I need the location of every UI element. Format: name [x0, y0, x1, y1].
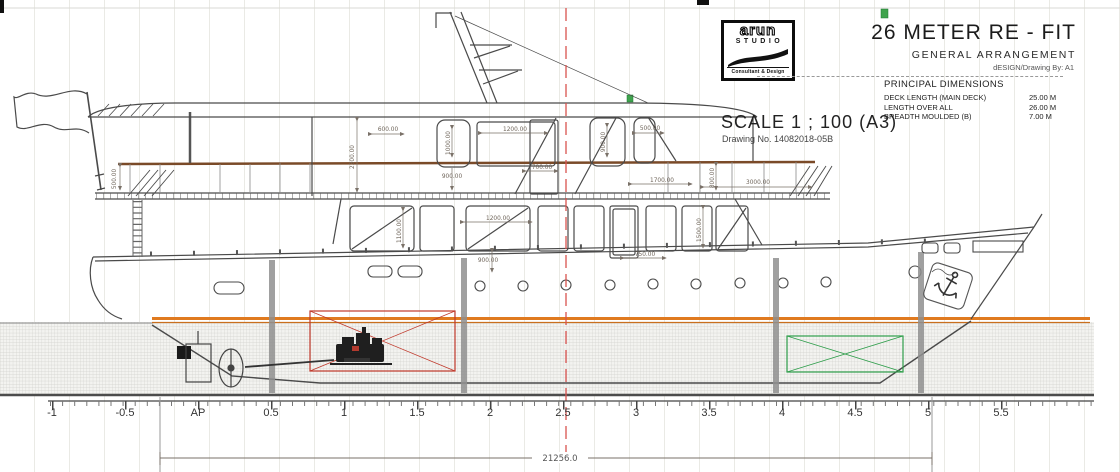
roof-hatch — [98, 104, 164, 116]
stern-flag — [14, 91, 105, 190]
bow-details — [922, 241, 1023, 311]
dim-label: 1700.00 — [650, 178, 674, 184]
ruler-label: 1 — [329, 407, 359, 419]
scale-note: SCALE 1 ; 100 (A3) — [721, 112, 897, 133]
principal-dimensions: PRINCIPAL DIMENSIONS DECK LENGTH (MAIN D… — [884, 79, 1079, 122]
pd-label: DECK LENGTH (MAIN DECK) — [884, 93, 1029, 103]
top-roof — [88, 95, 757, 117]
main-deck-door — [610, 206, 638, 258]
dim-label: 2300.00 — [350, 145, 356, 169]
logo-swoosh-icon — [726, 47, 790, 67]
steering-gear — [177, 346, 191, 359]
dim-label: 3000.00 — [746, 180, 770, 186]
dim-label: 1500.00 — [697, 218, 703, 242]
dim-label: 800.00 — [710, 168, 716, 189]
pilothouse-door — [530, 120, 558, 194]
dim-label: 1200.00 — [486, 216, 510, 222]
principal-dimensions-heading: PRINCIPAL DIMENSIONS — [884, 79, 1079, 90]
dim-label: 900.00 — [478, 258, 499, 264]
drawing-sheet: 500.00 2300.00 600.00 1000.00 1200.00 90… — [0, 0, 1120, 472]
dim-label: 500.00 — [112, 169, 118, 190]
principal-dimension-row: DECK LENGTH (MAIN DECK) 25.00 M — [884, 93, 1079, 103]
ruler-label: 1.5 — [402, 407, 432, 419]
ruler-label: 4.5 — [840, 407, 870, 419]
aft-stairs — [128, 170, 174, 196]
ruler-label: 3.5 — [694, 407, 724, 419]
dim-label: 750.00 — [635, 252, 656, 258]
caprail — [118, 162, 815, 164]
pd-value: 7.00 M — [1029, 112, 1052, 122]
sheet-frame — [0, 0, 1120, 18]
main-deckhouse — [95, 193, 830, 258]
ruler-label: 2.5 — [548, 407, 578, 419]
drawing-byline: dESIGN/Drawing By: A1 — [993, 63, 1074, 72]
studio-logo: arun STUDIO Consultant & Design — [721, 20, 795, 81]
green-marker-top — [881, 9, 888, 18]
pd-label: BREADTH MOULDED (B) — [884, 112, 1029, 122]
pd-value: 25.00 M — [1029, 93, 1056, 103]
dim-label: 700.00 — [532, 165, 553, 171]
yacht-profile-drawing: 500.00 2300.00 600.00 1000.00 1200.00 90… — [0, 0, 1120, 472]
ruler-label: 2 — [475, 407, 505, 419]
dim-label: 900.00 — [442, 174, 463, 180]
overall-dimension-label: 21256.0 — [542, 454, 577, 464]
portholes — [214, 266, 921, 294]
separator-line — [757, 76, 1063, 77]
logo-tagline: Consultant & Design — [727, 67, 789, 75]
drawing-number: Drawing No. 14082018-05B — [722, 134, 833, 144]
ruler-label: AP — [183, 407, 213, 419]
ruler-label: 5 — [913, 407, 943, 419]
logo-studio-text: STUDIO — [736, 38, 783, 46]
pd-value: 26.00 M — [1029, 103, 1056, 113]
ruler-label: -1 — [37, 407, 67, 419]
dim-label: 1200.00 — [503, 127, 527, 133]
ruler-label: 4 — [767, 407, 797, 419]
radar-mast — [436, 12, 648, 103]
principal-dimension-row: BREADTH MOULDED (B) 7.00 M — [884, 112, 1079, 122]
anchor-icon — [932, 266, 967, 301]
dim-label: 900.00 — [601, 132, 607, 153]
drawing-subtitle: GENERAL ARRANGEMENT — [912, 49, 1076, 61]
dim-label: 1000.00 — [446, 131, 452, 155]
dim-label: 500.00 — [640, 126, 661, 132]
deck-ladder — [133, 200, 142, 257]
dimension-labels: 500.00 2300.00 600.00 1000.00 1200.00 90… — [112, 126, 770, 264]
pd-label: LENGTH OVER ALL — [884, 103, 1029, 113]
waterline — [152, 319, 1090, 323]
ruler-label: 3 — [621, 407, 651, 419]
principal-dimension-row: LENGTH OVER ALL 26.00 M — [884, 103, 1079, 113]
dim-label: 600.00 — [378, 127, 399, 133]
overall-dimension: 21256.0 — [160, 452, 932, 465]
drawing-title: 26 METER RE - FIT — [871, 21, 1076, 45]
ruler-label: 5.5 — [986, 407, 1016, 419]
ruler-label: -0.5 — [110, 407, 140, 419]
logo-word: arun — [740, 24, 777, 38]
dim-label: 1100.00 — [397, 219, 403, 243]
ruler-label: 0.5 — [256, 407, 286, 419]
